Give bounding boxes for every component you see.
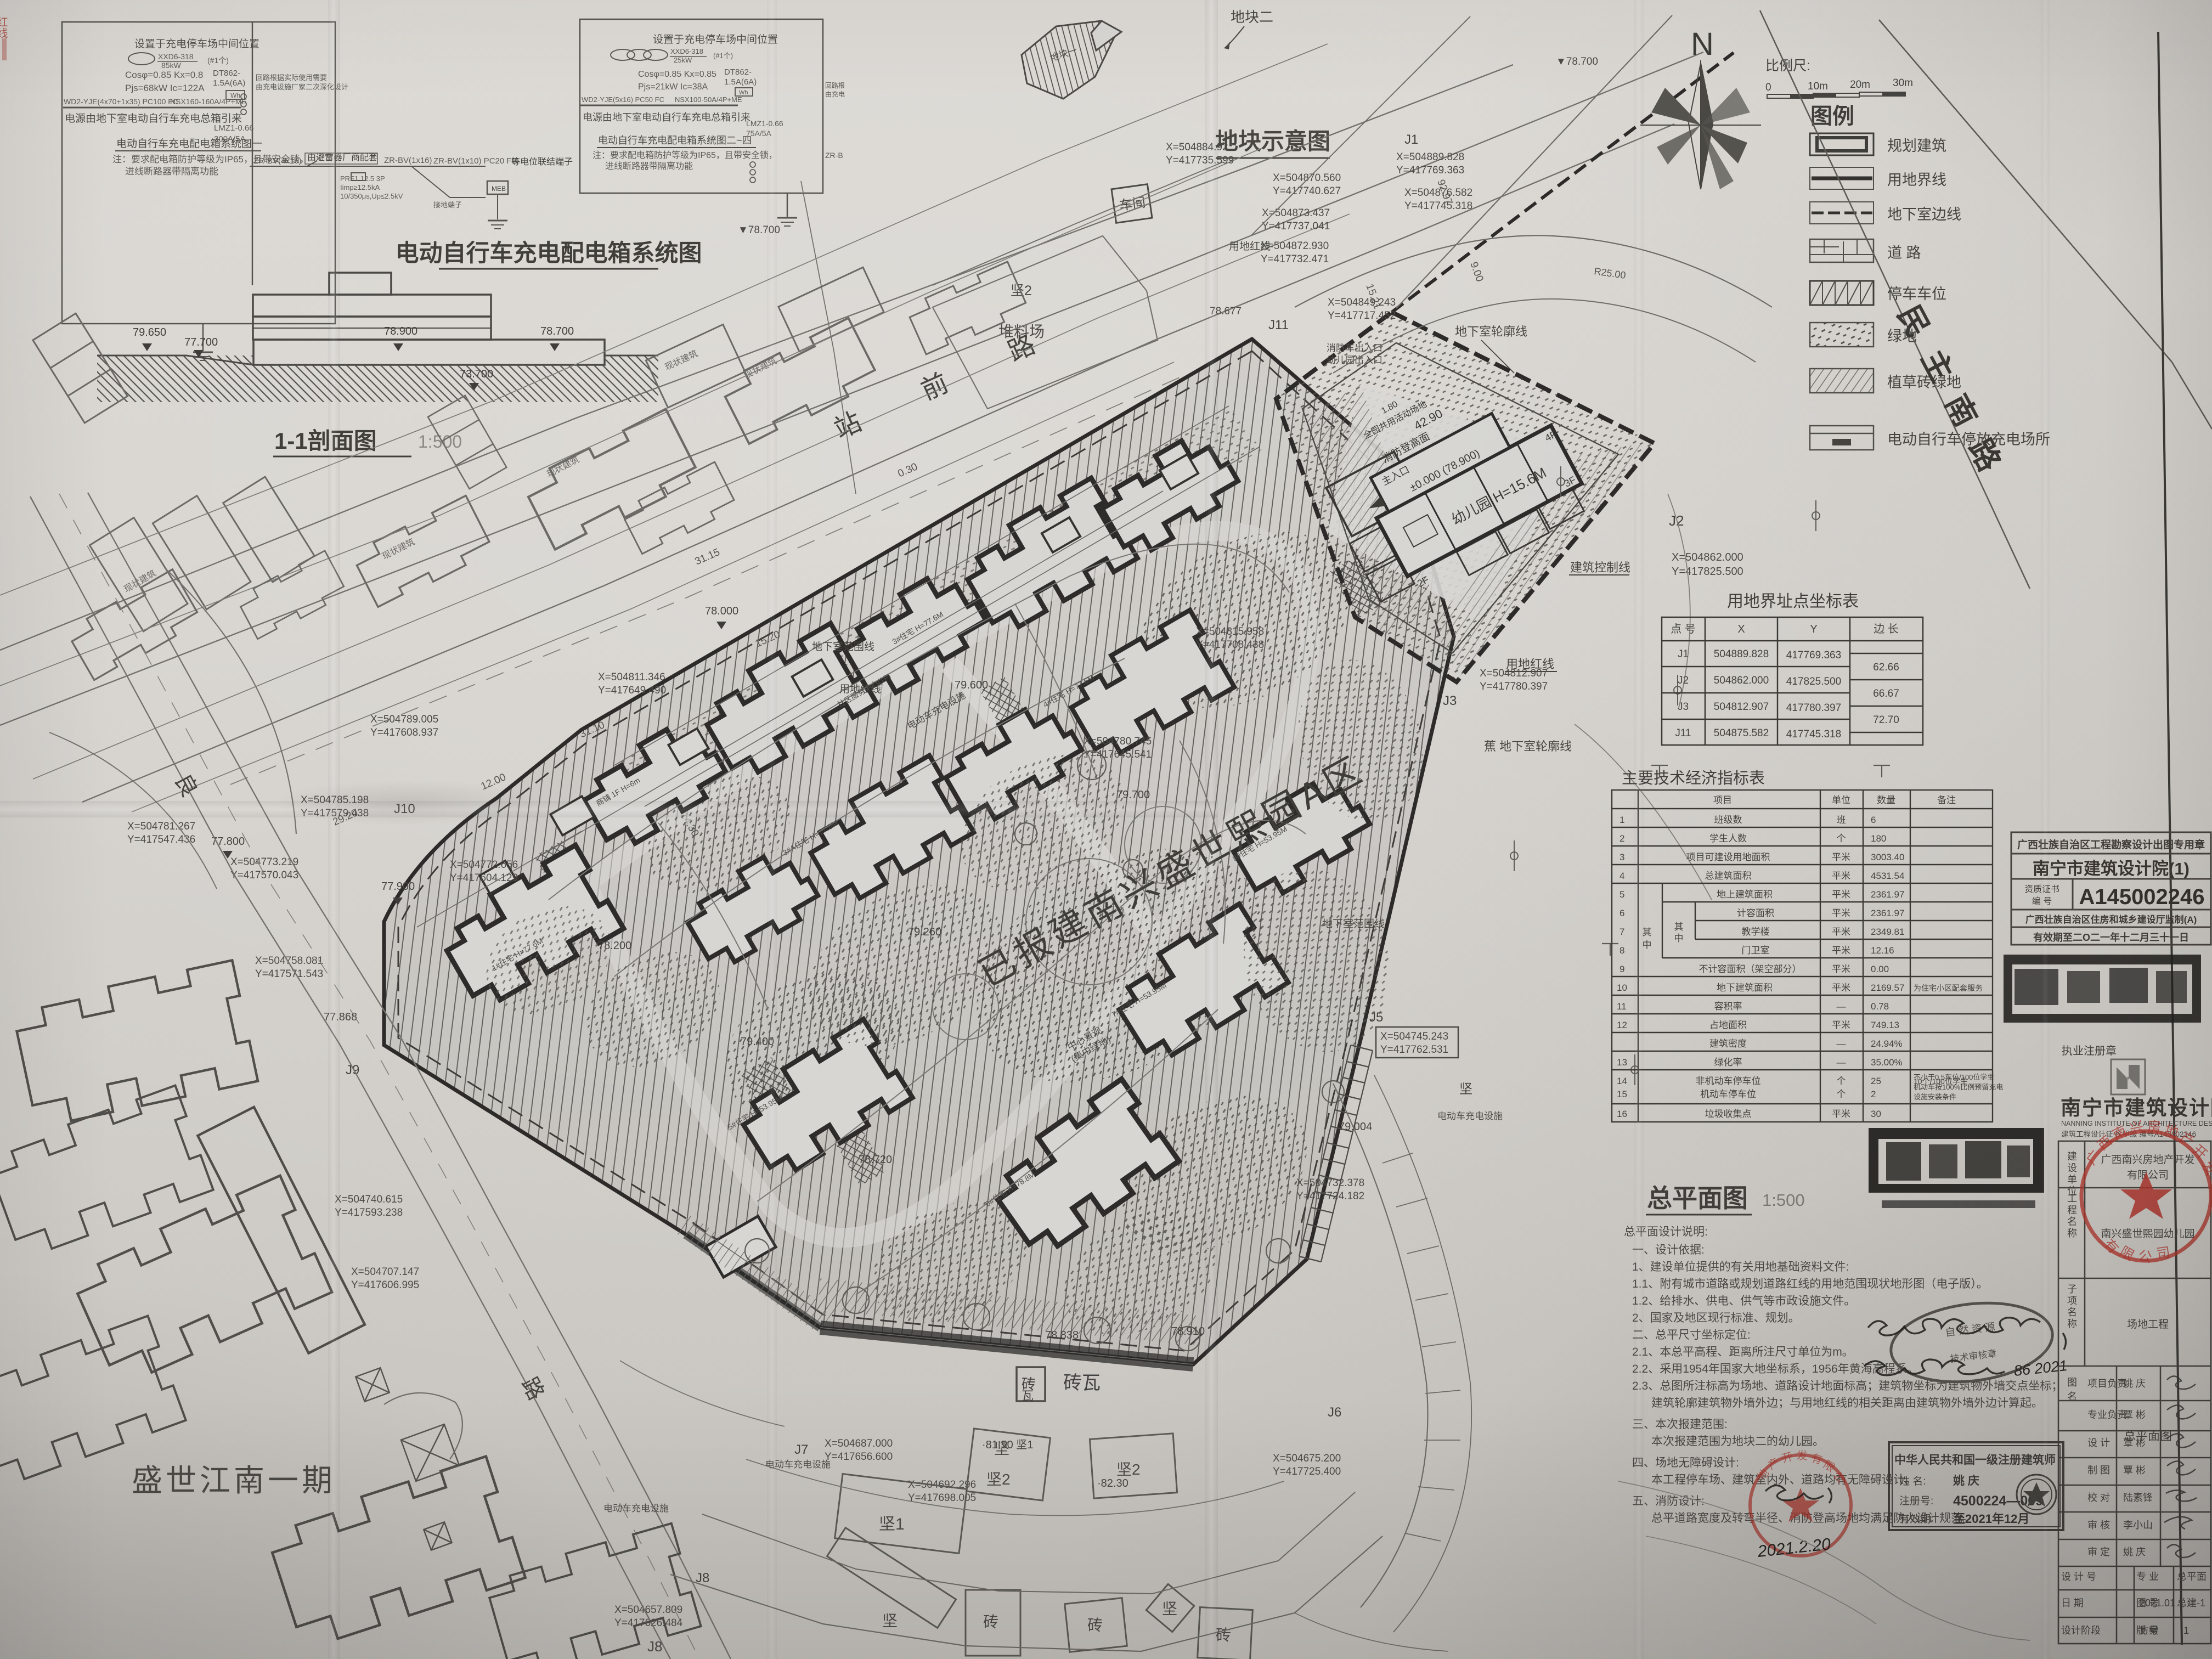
svg-text:(#1个): (#1个) (713, 52, 733, 60)
svg-text:容积率: 容积率 (1714, 1001, 1742, 1012)
svg-text:J2: J2 (1678, 675, 1689, 686)
svg-text:覃 彬: 覃 彬 (2123, 1465, 2146, 1476)
svg-text:项目可建设用地面积: 项目可建设用地面积 (1686, 852, 1770, 862)
svg-text:X=504780.745: X=504780.745 (1084, 736, 1152, 747)
svg-text:坚: 坚 (1162, 1600, 1177, 1617)
svg-text:10m: 10m (1808, 81, 1828, 92)
svg-text:图例: 图例 (1810, 104, 1854, 128)
svg-text:X=504870.560: X=504870.560 (1273, 172, 1341, 184)
svg-text:X=504811.346: X=504811.346 (598, 672, 665, 683)
svg-text:10/350μs,Up≤2.5kV: 10/350μs,Up≤2.5kV (340, 192, 403, 200)
svg-text:X=504849.243: X=504849.243 (1328, 297, 1396, 308)
svg-text:发: 发 (1797, 1449, 1808, 1462)
svg-text:25: 25 (1871, 1076, 1881, 1086)
svg-text:78.000: 78.000 (705, 605, 738, 617)
svg-text:1:500: 1:500 (418, 432, 462, 452)
svg-text:Pjs=21kW Ic=38A: Pjs=21kW Ic=38A (638, 82, 708, 92)
svg-text:J3: J3 (1443, 693, 1457, 708)
svg-text:5: 5 (1620, 889, 1624, 900)
svg-text:设 计: 设 计 (2087, 1437, 2110, 1448)
svg-text:现状建筑: 现状建筑 (663, 348, 699, 372)
svg-text:地下室边线: 地下室边线 (1887, 206, 1961, 223)
svg-text:数量: 数量 (1877, 795, 1895, 805)
svg-text:计容面积: 计容面积 (1737, 908, 1774, 918)
svg-text:4531.54: 4531.54 (1871, 871, 1904, 881)
svg-text:民主南路: 民主南路 (1891, 300, 2016, 494)
svg-text:姚 庆: 姚 庆 (1953, 1474, 1979, 1487)
svg-text:1.5A(6A): 1.5A(6A) (724, 77, 757, 87)
svg-text:建筑轮廓建筑物外墙外边；与用地红线的相关距离由建筑物外墙外边: 建筑轮廓建筑物外墙外边；与用地红线的相关距离由建筑物外墙外边计算起。 (1651, 1397, 2043, 1409)
svg-text:1.2、给排水、供电、供气等市政设施文件。: 1.2、给排水、供电、供气等市政设施文件。 (1632, 1295, 1855, 1307)
svg-text:用地界址点坐标表: 用地界址点坐标表 (1727, 592, 1859, 611)
svg-text:—: — (1837, 1039, 1846, 1049)
svg-text:12: 12 (1617, 1020, 1627, 1030)
svg-text:2、国家及地区现行标准、规划。: 2、国家及地区现行标准、规划。 (1632, 1312, 1800, 1324)
svg-text:X=504884.92: X=504884.92 (1166, 142, 1228, 153)
svg-text:504875.582: 504875.582 (1714, 727, 1769, 739)
svg-text:执业注册章: 执业注册章 (2062, 1045, 2117, 1057)
svg-text:非机动车停车位: 非机动车停车位 (1696, 1076, 1761, 1086)
svg-text:78.838: 78.838 (1045, 1329, 1079, 1341)
svg-text:姚 庆: 姚 庆 (2123, 1378, 2146, 1389)
svg-text:30m: 30m (1893, 77, 1913, 89)
svg-text:地块二: 地块二 (1231, 9, 1273, 25)
svg-text:X=504781.267: X=504781.267 (127, 821, 195, 832)
svg-text:机动车停车位: 机动车停车位 (1700, 1089, 1756, 1099)
svg-text:1:500: 1:500 (1762, 1190, 1805, 1210)
svg-text:180: 180 (1871, 833, 1886, 844)
svg-text:四、场地无障碍设计:: 四、场地无障碍设计: (1632, 1457, 1739, 1469)
svg-text:南宁市建筑设计院(1): 南宁市建筑设计院(1) (2033, 859, 2190, 878)
svg-text:Y=417656.600: Y=417656.600 (825, 1451, 893, 1463)
svg-text:子项名称: 子项名称 (2066, 1284, 2077, 1330)
svg-text:79.650: 79.650 (133, 326, 166, 338)
svg-text:Y=417608.937: Y=417608.937 (370, 727, 438, 738)
svg-text:13: 13 (1617, 1057, 1627, 1068)
svg-text:单位: 单位 (1832, 795, 1850, 805)
svg-text:不计容面积（架空部分）: 不计容面积（架空部分） (1699, 964, 1802, 974)
svg-text:广西壮族自治区住房和城乡建设厅监制(A): 广西壮族自治区住房和城乡建设厅监制(A) (2025, 914, 2197, 925)
svg-text:ZR-BV(1x10) PC20 FC: ZR-BV(1x10) PC20 FC (433, 156, 518, 166)
svg-text:504889.828: 504889.828 (1714, 648, 1769, 660)
svg-text:1-1剖面图: 1-1剖面图 (274, 428, 377, 454)
svg-text:开: 开 (1780, 1451, 1794, 1465)
svg-text:坚: 坚 (882, 1612, 898, 1629)
svg-text:—: — (1837, 1057, 1846, 1068)
svg-text:77.900: 77.900 (381, 881, 415, 893)
svg-text:X: X (1737, 623, 1745, 635)
svg-text:ZR-BV(4x16): ZR-BV(4x16) (253, 156, 302, 166)
svg-text:79.600: 79.600 (955, 679, 988, 691)
svg-text:砖: 砖 (983, 1613, 998, 1630)
svg-text:66.67: 66.67 (1873, 688, 1899, 699)
svg-text:由充电: 由充电 (825, 90, 845, 98)
svg-text:X=504872.930: X=504872.930 (1261, 240, 1329, 252)
svg-text:本工程停车场、建筑室内外、道路均有无障碍设计。: 本工程停车场、建筑室内外、道路均有无障碍设计。 (1651, 1474, 1916, 1486)
svg-text:Y=417762.531: Y=417762.531 (1380, 1044, 1448, 1056)
svg-text:制 图: 制 图 (2087, 1465, 2110, 1476)
svg-text:平米: 平米 (1832, 945, 1850, 956)
svg-text:Iimp≥12.5kA: Iimp≥12.5kA (340, 183, 380, 191)
svg-text:X=504732.378: X=504732.378 (1296, 1177, 1364, 1189)
svg-text:机动车按100%比例预留充电: 机动车按100%比例预留充电 (1914, 1083, 2003, 1091)
svg-text:72.70: 72.70 (1873, 714, 1899, 726)
svg-text:平米: 平米 (1832, 889, 1850, 900)
svg-text:2.2、采用1954年国家大地坐标系，1956年黄海高程系。: 2.2、采用1954年国家大地坐标系，1956年黄海高程系。 (1632, 1363, 1918, 1375)
svg-text:Y=417724.182: Y=417724.182 (1296, 1190, 1364, 1202)
svg-text:X=504758.081: X=504758.081 (255, 955, 323, 967)
svg-text:·82.30: ·82.30 (1097, 1477, 1128, 1489)
svg-text:2349.81: 2349.81 (1871, 927, 1904, 937)
svg-text:场地工程: 场地工程 (2127, 1318, 2169, 1330)
svg-text:2: 2 (1620, 833, 1624, 844)
svg-text:为住宅小区配套服务: 为住宅小区配套服务 (1914, 984, 1983, 992)
svg-text:ZR-B: ZR-B (825, 151, 843, 160)
svg-text:X=504707.147: X=504707.147 (351, 1266, 419, 1278)
svg-text:Y=417571.543: Y=417571.543 (255, 968, 323, 980)
svg-text:班: 班 (1837, 815, 1846, 825)
svg-text:0.00: 0.00 (1871, 964, 1889, 974)
svg-text:路: 路 (517, 1374, 549, 1404)
svg-text:14: 14 (1617, 1076, 1627, 1086)
svg-text:2169.57: 2169.57 (1871, 983, 1904, 993)
svg-text:绿化率: 绿化率 (1714, 1057, 1742, 1068)
svg-text:红线: 红线 (0, 16, 8, 38)
svg-text:J7: J7 (794, 1442, 808, 1457)
svg-text:回路根据实际使用需要: 回路根据实际使用需要 (256, 74, 327, 82)
svg-text:点 号: 点 号 (1671, 623, 1696, 635)
svg-text:总建-1: 总建-1 (2177, 1598, 2205, 1609)
svg-text:Y=417732.471: Y=417732.471 (1261, 253, 1329, 265)
svg-text:2: 2 (1871, 1089, 1876, 1099)
svg-text:图 号: 图 号 (2136, 1598, 2159, 1609)
svg-text:蕉 地下室轮廓线: 蕉 地下室轮廓线 (1484, 740, 1572, 753)
svg-text:不小于0.5车位/100位学生: 不小于0.5车位/100位学生 (1914, 1073, 1994, 1081)
svg-text:Y=417717.452: Y=417717.452 (1328, 310, 1396, 321)
svg-text:2.1、本总平高程、距离所注尺寸单位为m。: 2.1、本总平高程、距离所注尺寸单位为m。 (1632, 1346, 1854, 1358)
svg-text:个: 个 (1837, 833, 1846, 844)
svg-text:Y=417725.400: Y=417725.400 (1273, 1466, 1341, 1477)
svg-text:设施安装条件: 设施安装条件 (1914, 1093, 1956, 1101)
svg-text:Y=417649.490: Y=417649.490 (598, 685, 666, 696)
svg-text:1.1、附有城市道路或规划道路红线的用地范围现状地形图（电子: 1.1、附有城市道路或规划道路红线的用地范围现状地形图（电子版）。 (1632, 1278, 1988, 1290)
svg-text:设 计 号: 设 计 号 (2061, 1571, 2096, 1582)
svg-text:31.15: 31.15 (693, 546, 721, 568)
svg-text:良: 良 (170, 770, 202, 801)
svg-text:平米: 平米 (1832, 908, 1850, 918)
svg-text:中华人民共和国一级注册建筑师: 中华人民共和国一级注册建筑师 (1894, 1453, 2056, 1466)
svg-text:至2021年12月: 至2021年12月 (1953, 1512, 2029, 1526)
svg-text:Y=417825.500: Y=417825.500 (1672, 566, 1743, 578)
svg-text:N: N (1691, 26, 1714, 62)
svg-text:X=504773.219: X=504773.219 (230, 856, 298, 868)
svg-text:J11: J11 (1675, 727, 1691, 739)
svg-text:1: 1 (2183, 1625, 2189, 1636)
svg-text:道 路: 道 路 (1887, 245, 1921, 261)
svg-text:79.700: 79.700 (1116, 789, 1150, 801)
svg-text:有效期:: 有效期: (1899, 1513, 1933, 1525)
svg-text:417825.500: 417825.500 (1786, 676, 1841, 687)
svg-text:3003.40: 3003.40 (1871, 852, 1904, 862)
svg-text:X=504740.615: X=504740.615 (335, 1194, 403, 1205)
svg-text:专 业: 专 业 (2136, 1571, 2159, 1582)
svg-text:504862.000: 504862.000 (1714, 675, 1769, 686)
svg-text:78.720: 78.720 (859, 1154, 892, 1166)
svg-text:Pjs=68kW Ic=122A: Pjs=68kW Ic=122A (125, 83, 205, 93)
svg-text:62.66: 62.66 (1873, 662, 1899, 673)
svg-text:Y: Y (1810, 623, 1817, 635)
svg-text:南兴盛世熙园幼儿园: 南兴盛世熙园幼儿园 (2101, 1228, 2194, 1240)
svg-text:Y=417769.363: Y=417769.363 (1396, 165, 1464, 176)
svg-text:2361.97: 2361.97 (1871, 908, 1904, 918)
svg-text:X=504745.243: X=504745.243 (1380, 1031, 1448, 1042)
svg-text:(#1个): (#1个) (207, 56, 229, 65)
svg-text:2021.2.20: 2021.2.20 (1756, 1535, 1831, 1561)
svg-text:地下建筑面积: 地下建筑面积 (1717, 983, 1773, 993)
svg-text:建筑密度: 建筑密度 (1709, 1039, 1747, 1049)
svg-text:坚: 坚 (994, 1440, 1009, 1457)
svg-text:消防车出入口: 消防车出入口 (1327, 343, 1383, 353)
svg-text:16: 16 (1617, 1109, 1627, 1119)
svg-text:二、总平尺寸坐标定位:: 二、总平尺寸坐标定位: (1632, 1329, 1751, 1341)
svg-text:35.00%: 35.00% (1871, 1057, 1903, 1068)
svg-text:设计阶段: 设计阶段 (2061, 1625, 2101, 1636)
svg-text:NSX160-160A/4P+ME: NSX160-160A/4P+ME (170, 97, 247, 106)
svg-text:平米: 平米 (1832, 983, 1850, 993)
svg-text:417745.318: 417745.318 (1786, 729, 1841, 740)
svg-text:—: — (1837, 1001, 1846, 1012)
svg-text:20m: 20m (1850, 79, 1870, 91)
svg-text:4: 4 (1620, 871, 1624, 881)
svg-text:边 长: 边 长 (1874, 623, 1899, 635)
svg-text:校 对: 校 对 (2087, 1492, 2110, 1503)
svg-text:地下室范围线: 地下室范围线 (1322, 918, 1385, 930)
svg-text:A145002246: A145002246 (2079, 885, 2204, 909)
svg-text:坚: 坚 (1459, 1082, 1472, 1097)
svg-text:砖瓦: 砖瓦 (1063, 1373, 1101, 1393)
svg-text:77.700: 77.700 (184, 336, 218, 348)
svg-text:电源由地下室电动自行车充电总箱引来: 电源由地下室电动自行车充电总箱引来 (65, 112, 242, 125)
svg-text:LMZ1-0.66: LMZ1-0.66 (214, 123, 254, 133)
svg-text:R25.00: R25.00 (1593, 266, 1626, 281)
svg-text:25kW: 25kW (674, 56, 692, 64)
svg-text:地下室范围线: 地下室范围线 (812, 641, 874, 653)
svg-text:78.700: 78.700 (540, 325, 574, 337)
svg-text:地下室轮廓线: 地下室轮廓线 (1455, 325, 1527, 338)
svg-text:LMZ1-0.66: LMZ1-0.66 (746, 119, 783, 128)
svg-text:X=504812.907: X=504812.907 (1480, 668, 1548, 679)
svg-text:三、本次报建范围:: 三、本次报建范围: (1632, 1418, 1728, 1431)
svg-text:J5: J5 (1369, 1010, 1383, 1025)
svg-text:NSX100-50A/4P+ME: NSX100-50A/4P+ME (675, 95, 742, 104)
svg-text:盛世江南一期: 盛世江南一期 (132, 1463, 336, 1498)
svg-text:15: 15 (1617, 1089, 1627, 1099)
svg-text:等电位联结端子: 等电位联结端子 (511, 157, 573, 167)
svg-text:X=504772.656: X=504772.656 (450, 859, 518, 871)
svg-text:图名: 图名 (2066, 1377, 2077, 1406)
svg-text:司: 司 (2155, 1245, 2171, 1262)
svg-text:0.78: 0.78 (1871, 1001, 1889, 1012)
svg-text:DT862-: DT862- (213, 69, 240, 78)
svg-text:9.00: 9.00 (1468, 261, 1485, 284)
svg-text:6: 6 (1871, 815, 1876, 825)
svg-text:Y=417745.318: Y=417745.318 (1404, 200, 1472, 212)
svg-text:建设单位: 建设单位 (2066, 1151, 2077, 1197)
svg-text:X=504873.437: X=504873.437 (1262, 207, 1330, 219)
svg-text:24.94%: 24.94% (1871, 1039, 1903, 1049)
svg-text:个: 个 (1837, 1089, 1846, 1099)
svg-text:进线断路器带隔离功能: 进线断路器带隔离功能 (605, 161, 693, 171)
svg-text:平米: 平米 (1832, 871, 1850, 881)
svg-text:项目: 项目 (1713, 795, 1732, 805)
svg-text:Cosφ=0.85 Kx=0.85: Cosφ=0.85 Kx=0.85 (638, 70, 716, 79)
svg-text:坚2: 坚2 (986, 1471, 1011, 1488)
svg-text:房: 房 (2147, 1119, 2162, 1135)
svg-text:1、建设单位提供的有关用地基础资料文件:: 1、建设单位提供的有关用地基础资料文件: (1632, 1261, 1849, 1273)
svg-text:平米: 平米 (1832, 852, 1850, 862)
svg-text:417780.397: 417780.397 (1786, 702, 1841, 714)
svg-text:现状建筑: 现状建筑 (381, 537, 416, 561)
svg-text:有: 有 (1810, 1452, 1824, 1467)
svg-text:Y=417593.238: Y=417593.238 (335, 1207, 403, 1218)
svg-text:平米: 平米 (1832, 964, 1850, 974)
svg-text:坚1: 坚1 (879, 1515, 905, 1533)
svg-text:Y=417740.627: Y=417740.627 (1273, 185, 1341, 197)
svg-text:停车车位: 停车车位 (1887, 286, 1946, 302)
svg-text:电动自行车充电配电箱系统图一: 电动自行车充电配电箱系统图一 (116, 138, 262, 150)
svg-text:PRF1 12.5 3P: PRF1 12.5 3P (340, 174, 385, 183)
svg-text:专业负责: 专业负责 (2087, 1409, 2127, 1420)
svg-text:进线断路器带隔离功能: 进线断路器带隔离功能 (125, 166, 218, 177)
svg-text:个: 个 (1837, 1076, 1846, 1086)
svg-text:总平面: 总平面 (2177, 1571, 2207, 1582)
svg-text:覃 彬: 覃 彬 (2123, 1409, 2146, 1420)
svg-text:1.5A(6A): 1.5A(6A) (213, 78, 245, 88)
svg-text:其中: 其中 (1673, 922, 1684, 945)
svg-text:审 定: 审 定 (2087, 1547, 2110, 1558)
svg-text:电动自行车充电配电箱系统图: 电动自行车充电配电箱系统图 (396, 240, 702, 267)
svg-text:X=504687.000: X=504687.000 (825, 1438, 893, 1449)
svg-text:X=504862.000: X=504862.000 (1672, 551, 1743, 563)
svg-text:学生人数: 学生人数 (1709, 833, 1747, 844)
svg-text:砖: 砖 (1087, 1617, 1103, 1634)
svg-text:电动自行车充电配电箱系统图二~四: 电动自行车充电配电箱系统图二~四 (598, 135, 752, 146)
svg-text:班级数: 班级数 (1714, 815, 1742, 825)
svg-text:J11: J11 (1268, 318, 1289, 332)
svg-text:8: 8 (1620, 945, 1624, 956)
svg-text:注：要求配电箱防护等级为IP65，且带安全锁，: 注：要求配电箱防护等级为IP65，且带安全锁， (592, 150, 777, 160)
svg-text:79.260: 79.260 (908, 926, 941, 938)
svg-text:设置于充电停车场中间位置: 设置于充电停车场中间位置 (653, 33, 778, 46)
svg-text:X=504789.005: X=504789.005 (370, 714, 438, 725)
svg-text:用地界线: 用地界线 (1887, 172, 1946, 188)
svg-text:姓 名:: 姓 名: (1899, 1475, 1926, 1487)
svg-text:78.200: 78.200 (598, 940, 631, 952)
svg-text:12.16: 12.16 (1871, 945, 1894, 956)
svg-text:接地端子: 接地端子 (433, 201, 462, 209)
svg-text:X=504657.809: X=504657.809 (614, 1604, 682, 1616)
svg-text:30: 30 (1871, 1109, 1881, 1119)
svg-text:审 核: 审 核 (2087, 1520, 2110, 1531)
svg-text:瓦: 瓦 (1022, 1389, 1034, 1403)
svg-text:11: 11 (1617, 1001, 1627, 1012)
svg-text:姚 庆: 姚 庆 (2123, 1547, 2146, 1558)
svg-text:备注: 备注 (1937, 795, 1956, 805)
svg-text:版 号: 版 号 (2136, 1625, 2159, 1636)
svg-text:78.910: 78.910 (1171, 1325, 1205, 1338)
svg-text:坚2: 坚2 (1116, 1461, 1141, 1478)
svg-text:0.30: 0.30 (896, 461, 919, 479)
svg-text:覃 彬: 覃 彬 (2123, 1437, 2146, 1448)
svg-text:78.900: 78.900 (384, 325, 417, 337)
svg-text:0: 0 (1765, 82, 1771, 93)
svg-text:教学楼: 教学楼 (1742, 927, 1770, 937)
svg-text:2.3、总图所注标高为场地、道路设计地面标高；建筑物坐标为建: 2.3、总图所注标高为场地、道路设计地面标高；建筑物坐标为建筑物外墙交点坐标； (1632, 1380, 2063, 1392)
svg-text:技术审核章: 技术审核章 (1950, 1348, 1997, 1364)
svg-text:9: 9 (1620, 964, 1624, 974)
svg-text:2361.97: 2361.97 (1871, 889, 1904, 900)
svg-text:用地红线: 用地红线 (839, 683, 881, 695)
svg-text:X=504876.582: X=504876.582 (1404, 187, 1472, 199)
svg-text:WD2-YJE(5x16) PC50 FC: WD2-YJE(5x16) PC50 FC (582, 95, 664, 104)
svg-text:Cosφ=0.85 Kx=0.8: Cosφ=0.85 Kx=0.8 (125, 70, 203, 80)
svg-text:回路根: 回路根 (825, 81, 845, 89)
svg-text:平米: 平米 (1832, 1020, 1850, 1030)
svg-text:电动车充电设施: 电动车充电设施 (1437, 1111, 1503, 1121)
svg-text:Y=417780.397: Y=417780.397 (1480, 681, 1548, 692)
svg-text:平米: 平米 (1832, 1109, 1850, 1119)
svg-text:DT862-: DT862- (724, 67, 752, 77)
svg-text:规划建筑: 规划建筑 (1887, 138, 1946, 154)
svg-text:本次报建范围为地块二的幼儿园。: 本次报建范围为地块二的幼儿园。 (1651, 1435, 1824, 1448)
svg-text:平米: 平米 (1832, 927, 1850, 937)
svg-text:Y=417735.599: Y=417735.599 (1166, 155, 1234, 166)
svg-text:Y=417604.129: Y=417604.129 (450, 872, 518, 884)
svg-text:6: 6 (1620, 908, 1624, 918)
svg-text:10: 10 (1617, 983, 1627, 993)
svg-text:504812.907: 504812.907 (1714, 701, 1769, 713)
svg-text:设置于充电停车场中间位置: 设置于充电停车场中间位置 (134, 38, 259, 50)
svg-text:广西南兴房地产开发: 广西南兴房地产开发 (2101, 1154, 2194, 1166)
svg-text:注册号:: 注册号: (1899, 1495, 1933, 1507)
svg-text:电动车充电设施: 电动车充电设施 (603, 1503, 669, 1514)
svg-text:85kW: 85kW (161, 61, 182, 70)
svg-text:1: 1 (1620, 815, 1624, 825)
svg-text:J6: J6 (1328, 1405, 1341, 1420)
svg-text:J8: J8 (647, 1638, 662, 1655)
svg-text:公: 公 (2137, 1248, 2153, 1266)
svg-text:地上建筑面积: 地上建筑面积 (1717, 889, 1773, 900)
svg-text:X=504675.200: X=504675.200 (1273, 1453, 1341, 1464)
svg-text:建筑控制线: 建筑控制线 (1570, 561, 1630, 574)
svg-text:73.700: 73.700 (460, 368, 493, 380)
svg-text:占地面积: 占地面积 (1709, 1020, 1747, 1030)
svg-text:749.13: 749.13 (1871, 1020, 1899, 1030)
svg-text:日 期: 日 期 (2061, 1598, 2084, 1609)
svg-text:由避雷器厂商配套: 由避雷器厂商配套 (307, 153, 377, 162)
svg-text:门卫室: 门卫室 (1742, 945, 1770, 956)
svg-text:有效期至二О二一年十二月三十一日: 有效期至二О二一年十二月三十一日 (2033, 932, 2189, 943)
svg-text:陆素锋: 陆素锋 (2123, 1492, 2153, 1503)
svg-text:3: 3 (1620, 852, 1624, 862)
svg-text:7: 7 (1620, 927, 1624, 937)
svg-text:XXD6-318: XXD6-318 (158, 52, 194, 61)
svg-text:WD2-YJE(4x70+1x35) PC100 FC: WD2-YJE(4x70+1x35) PC100 FC (64, 97, 178, 106)
svg-text:XXD6-318: XXD6-318 (670, 47, 703, 55)
svg-text:MEB: MEB (492, 185, 506, 193)
svg-text:J1: J1 (1678, 648, 1689, 660)
svg-text:X=504889.828: X=504889.828 (1396, 151, 1464, 163)
